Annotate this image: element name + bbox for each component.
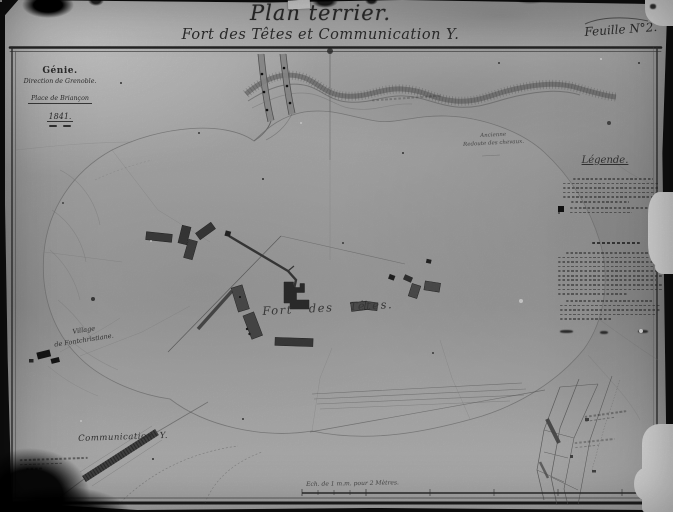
- annotation-heading: [592, 242, 640, 247]
- redoute-label: Ancienne Redoute des chevaux.: [462, 130, 525, 150]
- legend-title: Légende.: [560, 155, 650, 166]
- legend-black-square-symbol: [558, 206, 564, 212]
- photo-grain-light-specks: [0, 0, 2, 2]
- paper-tear-right-middle: [648, 192, 673, 266]
- ink-smudge: [560, 330, 573, 333]
- annotation-paragraph-2: [560, 300, 660, 323]
- cartouche-year: 1841.: [47, 112, 74, 122]
- tape-fragment: [288, 0, 310, 10]
- ink-smudge: [638, 330, 648, 333]
- map-title-line2: Fort des Têtes et Communication Y.: [168, 27, 473, 43]
- cartouche-direction: Direction de Grenoble.: [18, 78, 102, 85]
- paper-tear-bottom-right-bump: [634, 468, 656, 500]
- ink-smudge: [600, 331, 608, 334]
- top-right-dark-spot: [650, 4, 656, 9]
- legend-paragraph: [563, 178, 660, 205]
- cartouche: Génie. Direction de Grenoble. Place de B…: [18, 66, 102, 127]
- annotation-paragraph-1: [558, 252, 662, 298]
- cartouche-place: Place de Briançon: [28, 95, 92, 104]
- archival-map-photo: Plan terrier. Fort des Têtes et Communic…: [0, 0, 673, 512]
- legend-symbol-caption: [570, 207, 656, 216]
- cartouche-service: Génie.: [18, 66, 102, 76]
- cartouche-flourish: [18, 125, 102, 127]
- paper-tear-right-small: [655, 258, 673, 274]
